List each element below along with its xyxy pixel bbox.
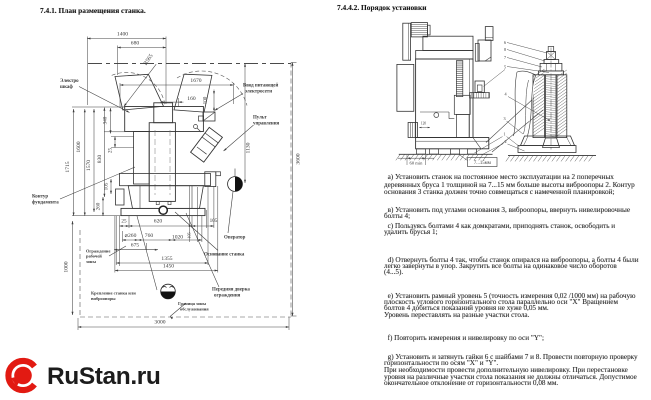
svg-text:680: 680 [131,41,140,47]
svg-text:6: 6 [504,40,506,45]
svg-text:25: 25 [121,219,127,225]
svg-text:1600: 1600 [76,141,82,152]
svg-text:Передняя дверка: Передняя дверка [212,288,250,293]
svg-text:260: 260 [96,202,102,210]
svg-text:шкаф: шкаф [60,85,73,90]
svg-text:620: 620 [154,219,163,225]
svg-text:8: 8 [504,47,506,52]
svg-text:160: 160 [187,96,196,102]
svg-text:2: 2 [504,139,506,144]
svg-text:ограждения: ограждения [214,294,241,299]
svg-text:1450: 1450 [163,264,174,270]
svg-text:3000: 3000 [154,320,165,326]
svg-text:Пульт: Пульт [253,116,267,121]
svg-text:Основание станка: Основание станка [204,252,245,257]
svg-text:Оператор: Оператор [224,235,246,240]
svg-text:Контур: Контур [32,195,48,200]
svg-text:Ввод питающей: Ввод питающей [243,84,278,89]
svg-text:⌀260: ⌀260 [125,233,137,239]
svg-text:1130: 1130 [246,142,252,153]
svg-text:R565: R565 [143,53,155,67]
svg-text:100: 100 [203,96,209,104]
svg-text:фундамента: фундамента [32,201,59,206]
svg-text:1670: 1670 [190,78,201,84]
svg-text:Граница зоны: Граница зоны [178,301,206,306]
svg-text:1715: 1715 [65,161,71,172]
svg-text:1020: 1020 [172,234,183,240]
svg-text:105: 105 [186,232,191,238]
svg-text:7...15мм: 7...15мм [474,161,491,166]
svg-text:1400: 1400 [117,32,128,38]
svg-text:25: 25 [108,148,114,154]
svg-text:4: 4 [504,92,507,97]
svg-text:7: 7 [504,55,506,60]
svg-text:830: 830 [97,155,103,164]
svg-text:340: 340 [103,116,109,124]
svg-text:105: 105 [103,182,109,190]
svg-text:675: 675 [131,243,140,249]
svg-text:60 min: 60 min [410,160,424,165]
svg-text:3: 3 [503,116,505,121]
svg-text:3600: 3600 [296,153,302,164]
svg-text:обслуживания: обслуживания [180,306,209,311]
svg-text:управления: управления [253,122,280,127]
svg-text:1355: 1355 [161,256,172,262]
svg-text:760: 760 [145,233,154,239]
svg-text:Электро: Электро [60,79,79,84]
svg-text:зоны: зоны [86,259,96,264]
svg-text:5: 5 [504,65,506,70]
svg-text:виброопоры: виброопоры [91,296,116,301]
svg-text:1: 1 [503,132,505,137]
svg-text:1570: 1570 [86,160,92,171]
svg-text:1000: 1000 [64,261,70,272]
svg-text:120: 120 [421,122,427,126]
svg-text:Крепление станка или: Крепление станка или [91,291,136,296]
svg-text:электросети: электросети [245,90,272,95]
